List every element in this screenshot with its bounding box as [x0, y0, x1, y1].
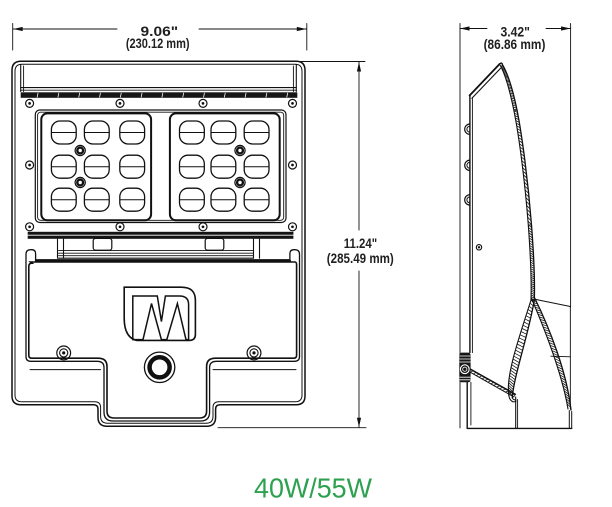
svg-text:11.24": 11.24": [344, 235, 377, 251]
svg-text:40W/55W: 40W/55W: [254, 473, 372, 504]
svg-text:(230.12 mm): (230.12 mm): [126, 35, 190, 51]
svg-text:(86.86 mm): (86.86 mm): [484, 36, 546, 52]
svg-text:(285.49 mm): (285.49 mm): [327, 250, 394, 266]
